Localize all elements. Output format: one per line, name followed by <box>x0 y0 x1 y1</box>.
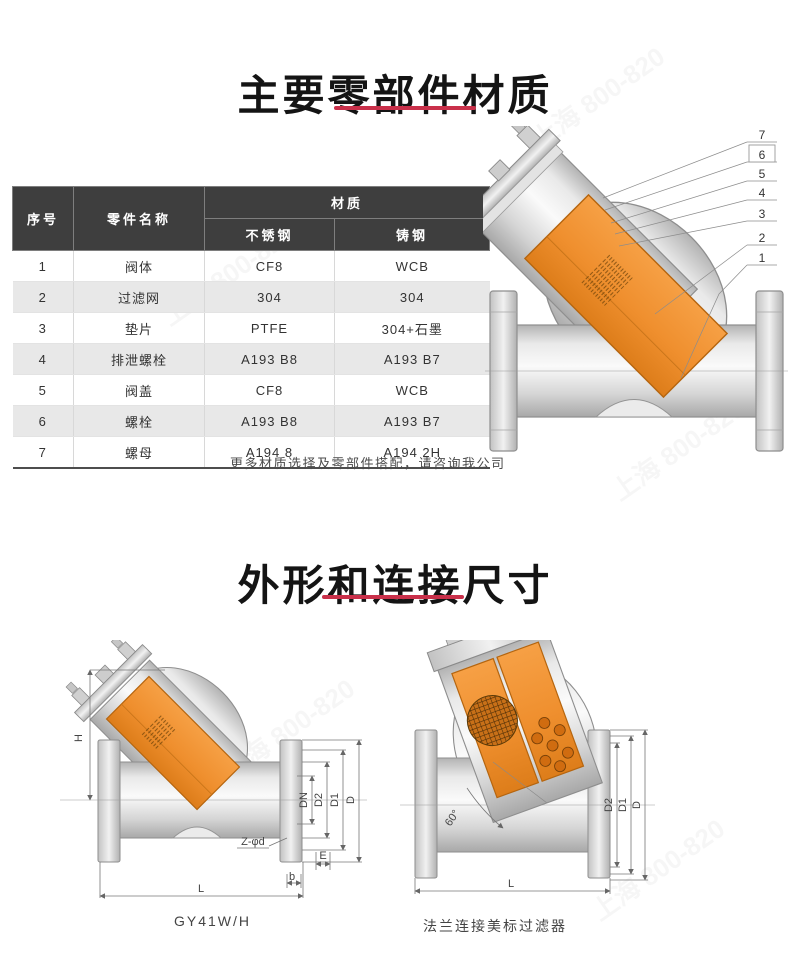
callout-4: 4 <box>759 186 766 200</box>
dim-label-b: b <box>289 871 295 883</box>
cell-cast: 304 <box>335 282 490 313</box>
callout-1: 1 <box>759 251 766 265</box>
cell-part-name: 过滤网 <box>74 282 205 313</box>
header-cast-steel: 铸钢 <box>335 219 490 251</box>
materials-note: 更多材质选择及零部件搭配，请咨询我公司 <box>230 453 506 472</box>
dim-label-L: L <box>508 878 514 890</box>
cell-part-name: 螺栓 <box>74 406 205 437</box>
left-drawing-caption: GY41W/H <box>35 913 390 929</box>
dim-label-D2: D2 <box>313 793 325 807</box>
materials-title-underline <box>334 106 476 110</box>
header-part-name: 零件名称 <box>74 187 205 251</box>
cell-no: 4 <box>13 344 74 375</box>
callout-2: 2 <box>759 231 766 245</box>
table-row: 4 排泄螺栓 A193 B8 A193 B7 <box>13 344 490 375</box>
dim-label-H: H <box>73 734 85 742</box>
dim-label-D1: D1 <box>617 798 629 812</box>
callout-3: 3 <box>759 207 766 221</box>
table-row: 5 阀盖 CF8 WCB <box>13 375 490 406</box>
cell-no: 1 <box>13 251 74 282</box>
cell-stainless: 304 <box>205 282 335 313</box>
dimension-drawing-flanged-strainer: 60° D2 D1 D L <box>395 640 790 912</box>
valve-cross-section-diagram: 7 6 5 4 3 2 1 <box>483 126 790 460</box>
materials-table: 序号 零件名称 材质 不锈钢 铸钢 1 阀体 CF8 WCB 2 过滤网 304… <box>12 186 490 469</box>
cell-no: 3 <box>13 313 74 344</box>
header-no: 序号 <box>13 187 74 251</box>
right-drawing-caption: 法兰连接美标过滤器 <box>380 916 610 936</box>
cell-cast: A193 B7 <box>335 344 490 375</box>
left-flange <box>98 740 120 862</box>
dimensions-section-title: 外形和连接尺寸 <box>0 552 790 613</box>
left-flange <box>415 730 437 878</box>
dimensions-title-underline <box>322 595 464 599</box>
cell-no: 7 <box>13 437 74 469</box>
callout-7: 7 <box>759 128 766 142</box>
cell-no: 2 <box>13 282 74 313</box>
callout-5: 5 <box>759 167 766 181</box>
cell-cast: A193 B7 <box>335 406 490 437</box>
dim-label-D: D <box>345 796 357 804</box>
cell-part-name: 阀盖 <box>74 375 205 406</box>
table-row: 3 垫片 PTFE 304+石墨 <box>13 313 490 344</box>
dim-label-DN: DN <box>298 792 310 808</box>
table-row: 6 螺栓 A193 B8 A193 B7 <box>13 406 490 437</box>
cell-no: 5 <box>13 375 74 406</box>
cell-no: 6 <box>13 406 74 437</box>
table-row: 1 阀体 CF8 WCB <box>13 251 490 282</box>
cell-cast: 304+石墨 <box>335 313 490 344</box>
cell-part-name: 垫片 <box>74 313 205 344</box>
cell-part-name: 阀体 <box>74 251 205 282</box>
cell-cast: WCB <box>335 251 490 282</box>
callout-6: 6 <box>759 148 766 162</box>
dim-label-D2: D2 <box>603 798 615 812</box>
cell-part-name: 排泄螺栓 <box>74 344 205 375</box>
cell-stainless: A193 B8 <box>205 406 335 437</box>
cell-stainless: PTFE <box>205 313 335 344</box>
dim-label-D: D <box>631 801 643 809</box>
cell-stainless: CF8 <box>205 375 335 406</box>
cell-stainless: CF8 <box>205 251 335 282</box>
cell-cast: WCB <box>335 375 490 406</box>
dim-label-D1: D1 <box>329 793 341 807</box>
header-stainless-steel: 不锈钢 <box>205 219 335 251</box>
dim-label-L: L <box>198 883 204 895</box>
dimension-drawing-gy41wh: H DN D2 D1 D Z-φd E b L <box>35 640 390 912</box>
table-row: 2 过滤网 304 304 <box>13 282 490 313</box>
cell-part-name: 螺母 <box>74 437 205 469</box>
dim-label-E: E <box>319 850 326 862</box>
materials-section-title: 主要零部件材质 <box>0 62 790 123</box>
dim-label-Zd: Z-φd <box>241 836 265 848</box>
header-material: 材质 <box>205 187 490 219</box>
cell-stainless: A193 B8 <box>205 344 335 375</box>
